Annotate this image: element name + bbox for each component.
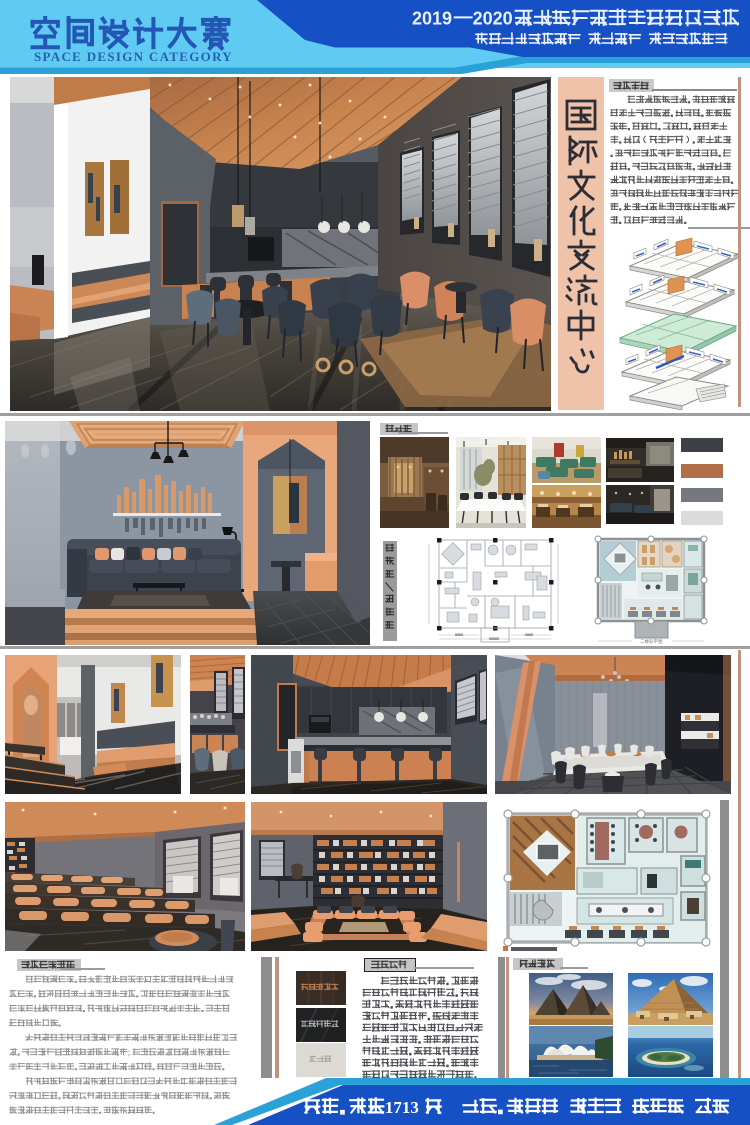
svg-text:2019: 2019 (412, 9, 452, 29)
svg-text:1713: 1713 (385, 1098, 419, 1117)
svg-text:二楼彩平图: 二楼彩平图 (640, 638, 663, 645)
svg-text:2020: 2020 (473, 9, 513, 29)
svg-text:;: ; (128, 1048, 130, 1057)
